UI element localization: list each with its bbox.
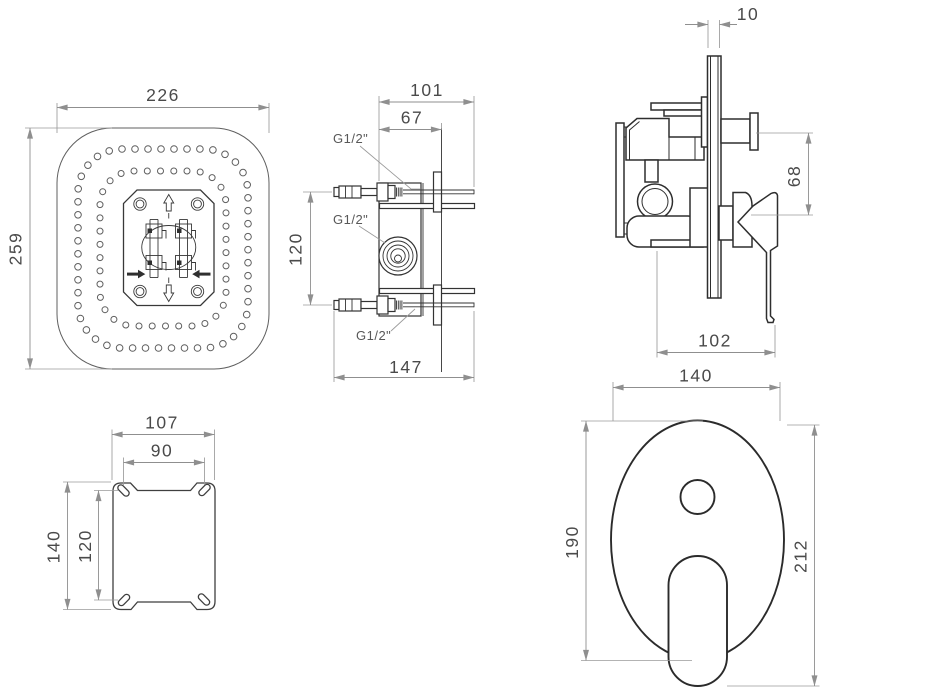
dimension-label: 102 [698,331,732,351]
nozzle-hole [223,223,229,229]
nozzle-hole [223,289,229,295]
nozzle-hole [94,153,101,160]
dim-valve-width-total: 147 [334,311,474,382]
nozzle-hole [106,148,113,155]
nozzle-hole [223,197,229,203]
nozzle-hole [213,313,219,319]
nozzle-hole [77,315,84,322]
shower-bracket [124,190,215,306]
dim-slot-spacing-x: 90 [124,441,205,486]
nozzle-hole [181,345,188,352]
nozzle-hole [171,146,178,153]
nozzle-hole [75,186,82,193]
dimension-label: 226 [146,85,180,105]
dimension-label: 68 [784,165,804,187]
nozzle-hole [75,225,82,232]
diverter-button [681,480,715,514]
slot-hole [117,593,131,607]
dimension-label: 10 [737,4,759,24]
nozzle-hole [244,182,251,189]
nozzle-hole [145,146,152,153]
dim-plate-thickness: 10 [685,4,759,48]
technical-drawing-canvas: 226 259 [0,0,945,700]
nozzle-hole [158,146,165,153]
nozzle-hole [194,345,201,352]
view-trim-front: 140 190 212 [562,366,820,687]
nozzle-hole [129,345,136,352]
dimension-label: 190 [562,525,582,559]
nozzle-hole [119,146,126,153]
nozzle-hole [97,228,103,234]
nozzle-hole [243,311,250,318]
nozzle-hole [184,168,190,174]
wall-flange-bottom [434,285,442,325]
dim-shower-width: 226 [57,85,269,133]
nozzle-hole [75,251,82,258]
diverter-knob [750,113,758,150]
slot-hole [197,593,211,607]
cartridge-circle [638,184,673,219]
nozzle-hole [220,302,226,308]
nozzle-hole [75,238,82,245]
nozzle-hole [97,281,103,287]
nozzle-hole [97,294,103,300]
nozzle-hole [116,345,123,352]
valve-block [626,119,704,161]
thread-label: G1/2" [333,212,368,227]
dimension-label: 212 [791,539,811,573]
nozzle-hole [142,345,149,352]
nozzle-hole [97,202,103,208]
slot-hole [117,484,131,498]
nozzle-hole [75,199,82,206]
nozzle-hole [223,250,229,256]
nozzle-hole [111,316,117,322]
view-mixer-side: 10 68 102 [616,4,813,358]
nozzle-hole [83,327,90,334]
nozzle-hole [75,289,82,296]
dimension-label: 120 [286,232,306,266]
nozzle-hole [245,220,252,227]
wall-flange-top [434,172,442,212]
nozzle-hole [149,323,155,329]
nozzle-hole [107,178,113,184]
nozzle-hole [118,171,124,177]
dimension-label: 120 [75,529,95,563]
nozzle-hole [184,146,191,153]
lever-handle-front [669,556,728,686]
nozzle-hole [168,345,175,352]
nozzle-hole [92,336,99,343]
dimension-label: 140 [679,366,713,386]
port-label-middle: G1/2" [333,212,385,243]
nozzle-hole [102,307,108,313]
nozzle-hole [155,345,162,352]
dim-shower-height: 259 [6,128,113,369]
nozzle-hole [97,241,103,247]
nozzle-hole [209,175,215,181]
nozzle-hole [136,323,142,329]
nozzle-hole [245,207,252,214]
nozzle-hole [223,263,229,269]
thread-label: G1/2" [356,328,391,343]
nozzle-hole [171,168,177,174]
nozzle-hole [245,259,252,266]
dim-valve-depth-total: 101 [379,80,474,187]
nozzle-hole [158,168,164,174]
nozzle-hole [78,173,85,180]
nozzle-hole [218,184,224,190]
nozzle-hole [210,147,217,154]
wall-plate [708,56,722,298]
view-showerhead-top: 226 259 [6,85,270,369]
dimension-label: 140 [44,530,64,564]
nozzle-hole [232,159,239,166]
nozzle-hole [197,146,204,153]
nozzle-hole [97,255,103,261]
dimension-label: 90 [151,441,173,461]
nozzle-hole [75,277,82,284]
dimension-label: 67 [401,108,423,128]
nozzle-hole [230,333,237,340]
nozzle-hole [239,323,246,330]
nozzle-hole [100,189,106,195]
dim-slot-spacing-y: 120 [75,491,118,601]
dimension-label: 147 [389,357,423,377]
dim-trim-width: 140 [613,366,780,422]
nozzle-hole [75,264,82,271]
nozzle-hole [245,246,252,253]
drawing-page: 226 259 [0,0,945,700]
nozzle-hole [223,276,229,282]
mounting-bracket [616,123,624,237]
nozzle-hole [223,236,229,242]
nozzle-hole [132,146,139,153]
nozzle-hole [220,341,227,348]
nozzle-hole [245,285,252,292]
nozzle-hole [97,215,103,221]
port-label-top: G1/2" [333,131,420,189]
nozzle-hole [163,323,169,329]
slot-hole [198,483,212,497]
nozzle-hole [223,210,229,216]
nozzle-hole [104,342,111,349]
plate-outline [113,483,215,610]
dim-valve-port-spacing: 120 [286,192,333,305]
nozzle-hole [144,168,150,174]
nozzle-hole [189,323,195,329]
nozzle-hole [245,195,252,202]
view-mounting-plate: 107 90 140 120 [44,413,216,610]
nozzle-hole [245,272,252,279]
dim-valve-depth-to-wall: 67 [379,108,442,130]
nozzle-hole [85,162,92,169]
thread-label: G1/2" [333,131,368,146]
view-valve-side: 101 67 120 147 G1/2" G1/2" G1/2" [286,80,475,382]
dim-trim-total-height: 212 [727,425,820,686]
diverter-shaft [721,119,750,143]
nozzle-hole [131,168,137,174]
nozzle-hole [123,322,129,328]
dimension-label: 107 [145,413,179,433]
nozzle-hole [222,151,229,158]
nozzle-hole [240,169,247,176]
nozzle-hole [176,323,182,329]
nozzle-hole [207,344,214,351]
dimension-label: 101 [410,80,444,100]
nozzle-hole [75,302,82,309]
nozzle-hole [245,298,252,305]
dimension-label: 259 [6,232,26,266]
nozzle-hole [197,169,203,175]
nozzle-hole [202,321,208,327]
nozzle-hole [245,233,252,240]
nozzle-hole [75,212,82,219]
nozzle-hole [97,268,103,274]
